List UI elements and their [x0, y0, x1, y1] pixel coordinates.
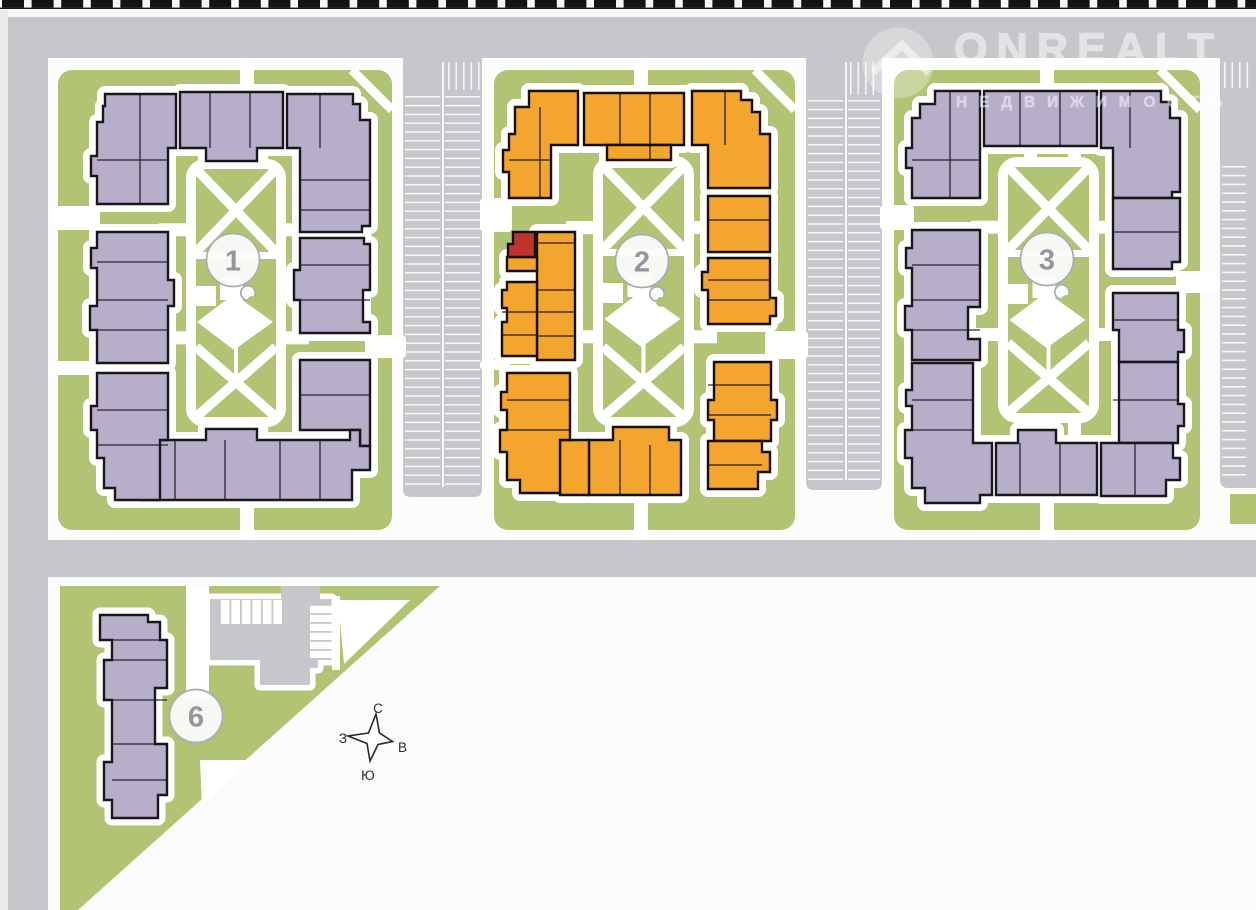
svg-text:2: 2 [634, 247, 650, 279]
svg-text:З: З [339, 731, 347, 746]
svg-text:3: 3 [1039, 245, 1055, 277]
svg-text:В: В [398, 740, 407, 755]
svg-text:Ю: Ю [361, 768, 375, 783]
svg-text:1: 1 [225, 246, 241, 278]
svg-text:6: 6 [188, 702, 204, 734]
svg-text:ONREALT: ONREALT [954, 25, 1223, 73]
svg-text:С: С [373, 701, 383, 716]
svg-text:НЕДВИЖИМОСТЬ: НЕДВИЖИМОСТЬ [956, 94, 1234, 111]
